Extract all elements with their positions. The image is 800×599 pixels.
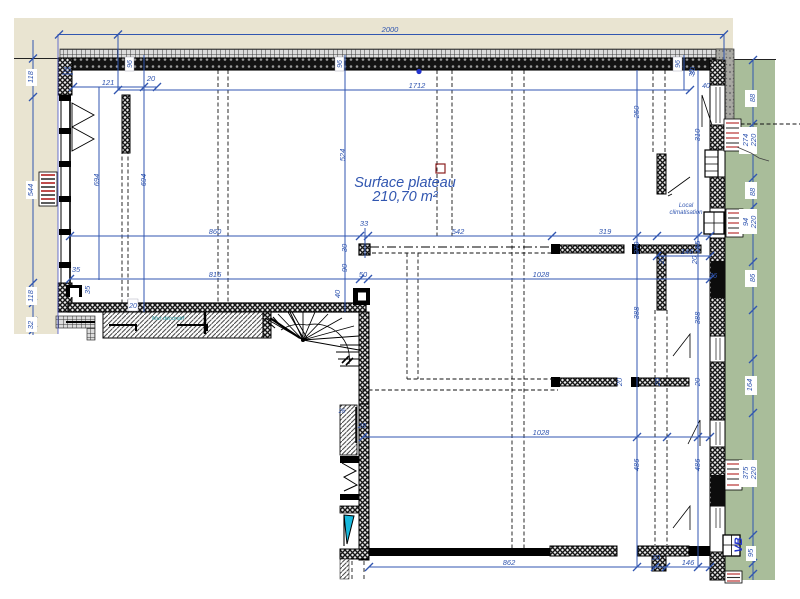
svg-text:146: 146 [682, 558, 695, 567]
svg-text:860: 860 [209, 227, 222, 236]
svg-text:694: 694 [139, 174, 148, 187]
svg-text:542: 542 [452, 227, 465, 236]
svg-text:310: 310 [693, 128, 702, 141]
svg-text:20: 20 [690, 255, 699, 265]
svg-text:486: 486 [632, 458, 641, 471]
svg-text:88: 88 [748, 93, 757, 102]
svg-text:climatisation: climatisation [669, 210, 703, 216]
svg-text:118: 118 [26, 70, 35, 83]
svg-text:88: 88 [748, 187, 757, 196]
svg-text:1028: 1028 [533, 270, 551, 279]
svg-text:20: 20 [651, 553, 661, 562]
svg-text:28: 28 [357, 421, 367, 430]
svg-text:26: 26 [338, 409, 346, 415]
svg-text:210,70 m²: 210,70 m² [371, 189, 438, 205]
svg-text:250: 250 [632, 105, 641, 119]
svg-text:96: 96 [675, 60, 682, 68]
svg-text:40: 40 [702, 83, 710, 90]
svg-text:86: 86 [748, 273, 757, 282]
svg-text:96: 96 [337, 60, 344, 68]
svg-text:164: 164 [745, 379, 754, 392]
svg-text:95: 95 [746, 548, 755, 557]
svg-text:1712: 1712 [409, 81, 427, 90]
svg-text:524: 524 [338, 149, 347, 162]
svg-text:1028: 1028 [533, 428, 551, 437]
svg-text:96: 96 [127, 60, 134, 68]
svg-text:694: 694 [92, 174, 101, 187]
svg-text:35: 35 [63, 65, 72, 74]
svg-text:40: 40 [333, 289, 342, 298]
svg-text:220: 220 [749, 466, 758, 480]
svg-text:20: 20 [693, 377, 702, 387]
svg-text:32: 32 [26, 320, 35, 329]
svg-text:815: 815 [209, 270, 222, 279]
svg-text:20: 20 [615, 377, 624, 387]
svg-text:220: 220 [749, 133, 758, 147]
svg-text:544: 544 [26, 184, 35, 197]
svg-text:319: 319 [599, 227, 612, 236]
svg-text:118: 118 [26, 289, 35, 302]
svg-text:Local: Local [679, 203, 694, 209]
svg-text:Mur décoratif: Mur décoratif [152, 316, 185, 322]
svg-text:270: 270 [632, 241, 641, 255]
svg-text:155: 155 [693, 240, 702, 253]
svg-text:30: 30 [340, 243, 349, 252]
svg-text:35: 35 [72, 265, 81, 274]
svg-text:20: 20 [657, 255, 666, 265]
svg-text:35: 35 [83, 285, 92, 294]
svg-text:30: 30 [689, 69, 696, 77]
svg-text:2000: 2000 [381, 25, 400, 34]
svg-text:VB: VB [733, 537, 745, 552]
svg-text:50: 50 [359, 270, 368, 279]
svg-text:36: 36 [709, 271, 718, 280]
svg-text:388: 388 [693, 311, 702, 324]
svg-text:862: 862 [503, 558, 516, 567]
svg-text:486: 486 [693, 458, 702, 471]
svg-text:90: 90 [340, 263, 349, 272]
svg-text:220: 220 [749, 215, 758, 229]
svg-text:33: 33 [360, 219, 369, 228]
svg-text:20: 20 [146, 74, 156, 83]
svg-text:388: 388 [632, 306, 641, 319]
svg-text:121: 121 [102, 78, 115, 87]
svg-text:20: 20 [128, 303, 137, 310]
svg-text:20: 20 [653, 377, 662, 387]
